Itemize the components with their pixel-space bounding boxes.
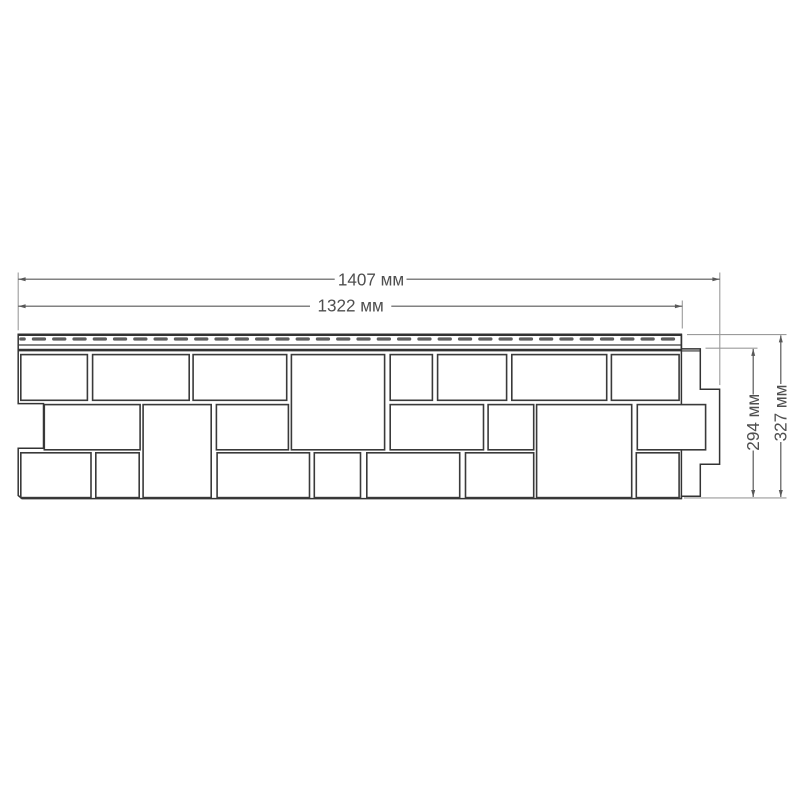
svg-text:294 мм: 294 мм xyxy=(744,394,763,451)
svg-text:1407 мм: 1407 мм xyxy=(338,271,404,290)
svg-text:1322 мм: 1322 мм xyxy=(317,297,383,316)
svg-text:327 мм: 327 мм xyxy=(771,385,790,442)
